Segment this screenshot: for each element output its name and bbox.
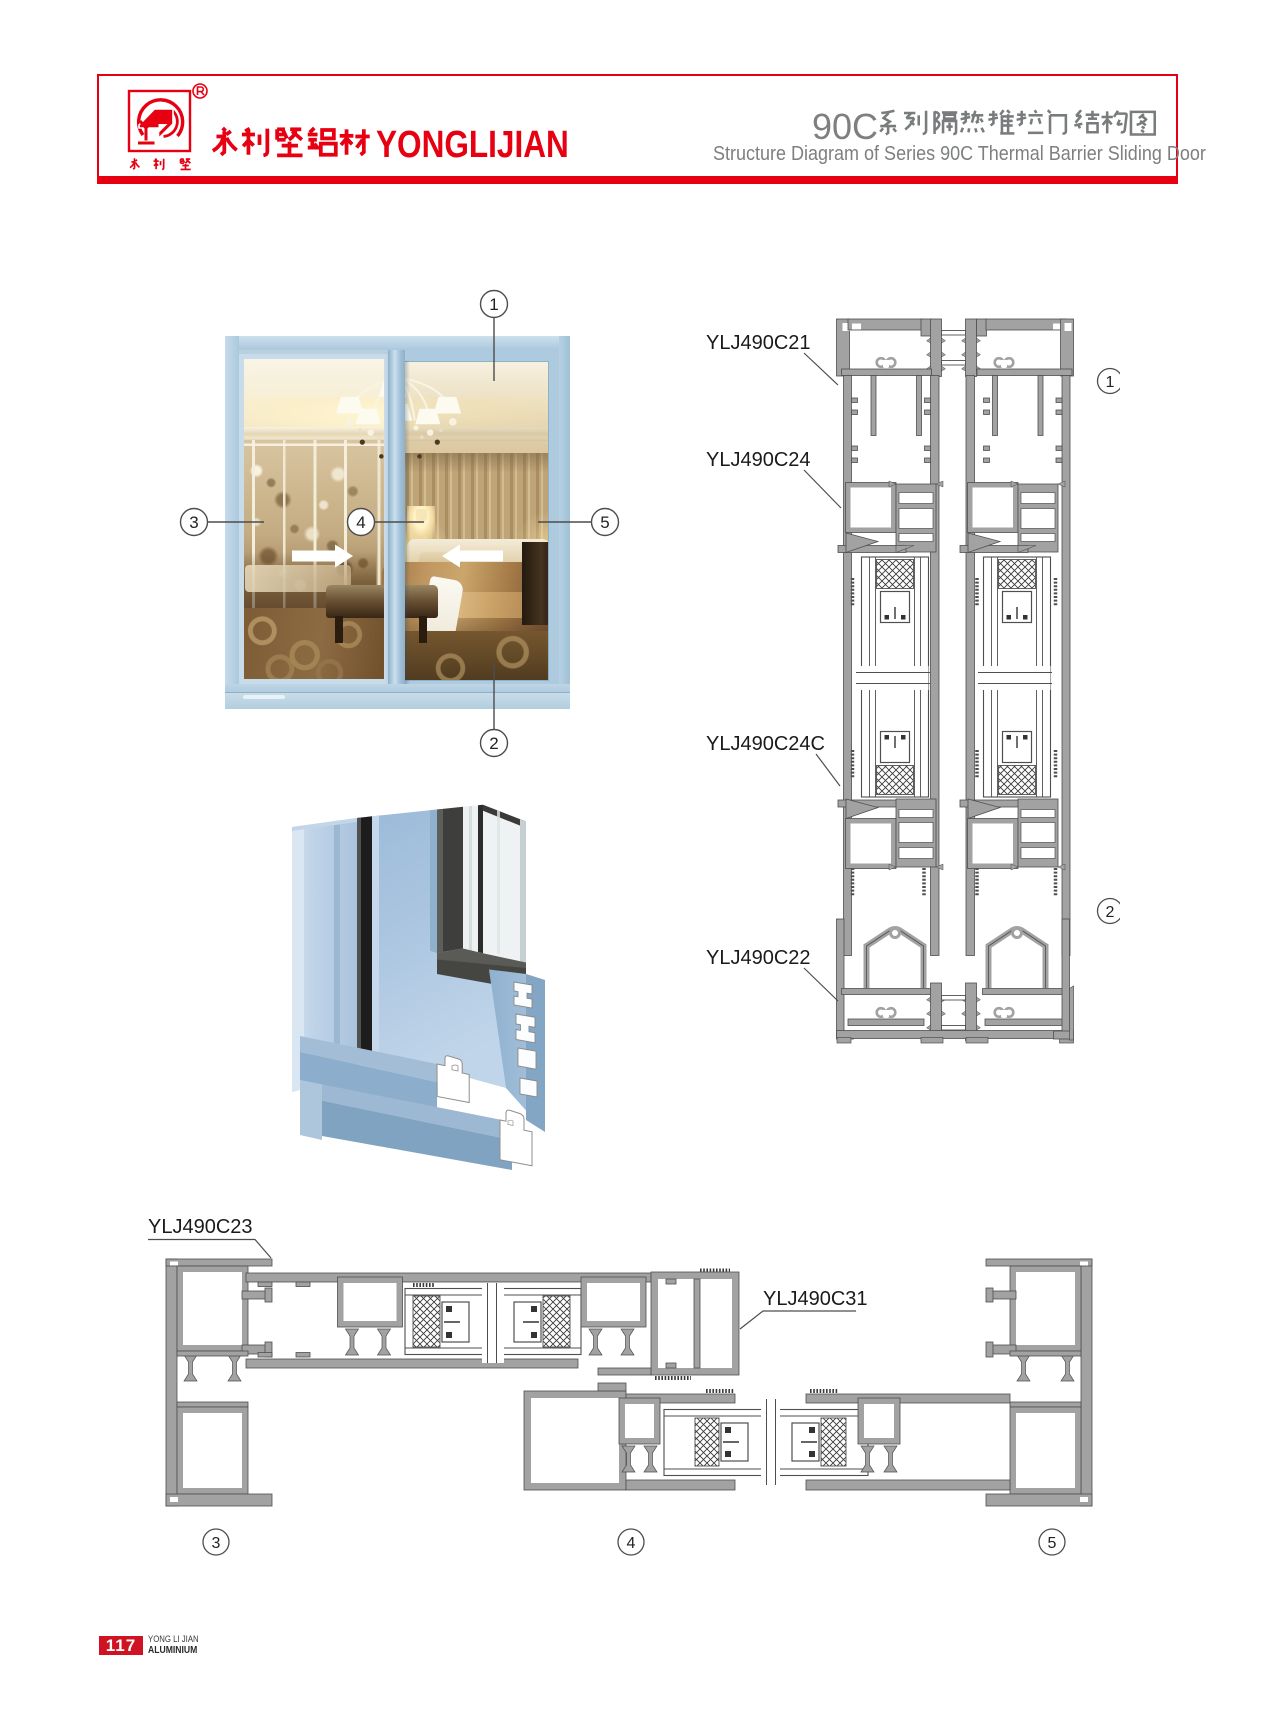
svg-text:4: 4: [356, 513, 365, 532]
svg-text:2: 2: [1106, 904, 1115, 921]
svg-text:4: 4: [627, 1535, 636, 1552]
svg-text:5: 5: [1048, 1535, 1057, 1552]
svg-text:5: 5: [600, 513, 609, 532]
svg-text:2: 2: [489, 734, 498, 753]
svg-text:3: 3: [212, 1535, 221, 1552]
svg-text:3: 3: [189, 513, 198, 532]
svg-text:1: 1: [489, 295, 498, 314]
svg-text:1: 1: [1106, 374, 1115, 391]
